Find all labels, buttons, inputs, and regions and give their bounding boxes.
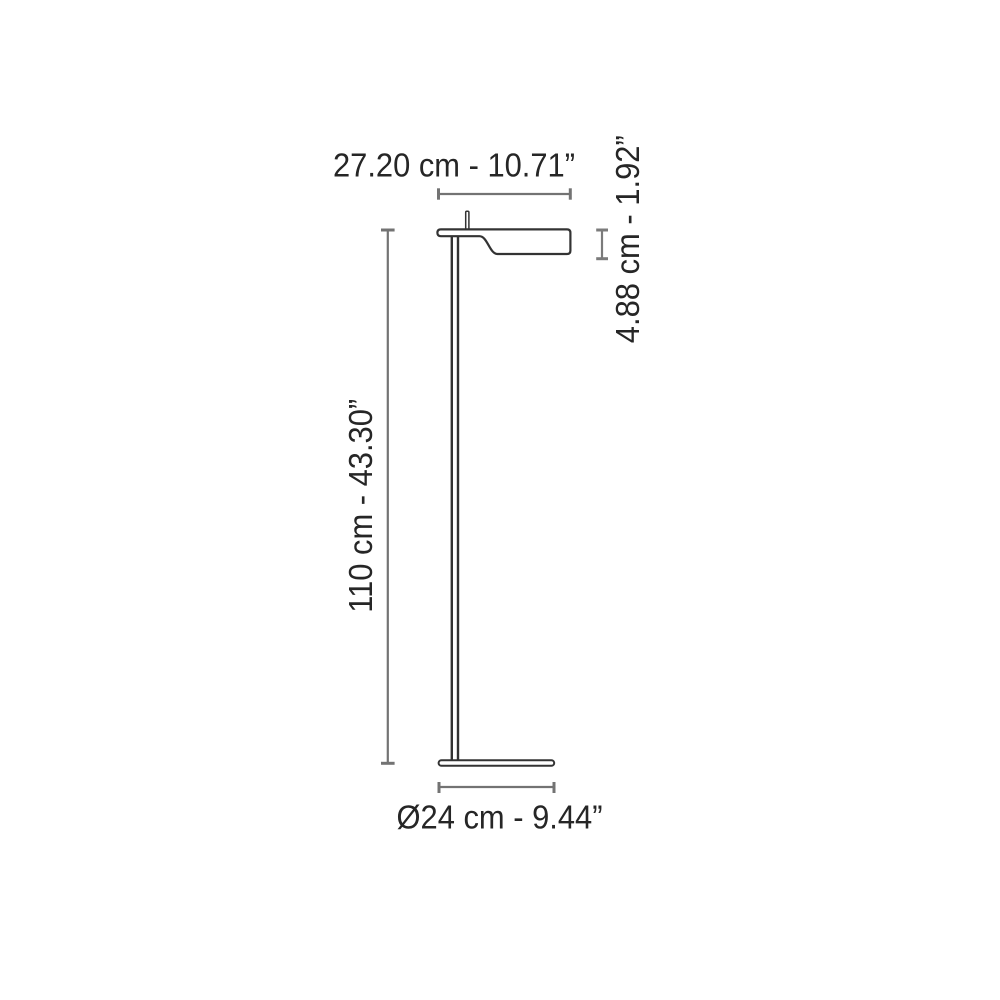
svg-text:4.88 cm - 1.92”: 4.88 cm - 1.92” <box>609 135 646 343</box>
svg-text:110 cm - 43.30”: 110 cm - 43.30” <box>342 399 379 613</box>
svg-text:Ø24 cm - 9.44”: Ø24 cm - 9.44” <box>397 798 603 835</box>
svg-text:27.20 cm - 10.71”: 27.20 cm - 10.71” <box>333 147 575 184</box>
